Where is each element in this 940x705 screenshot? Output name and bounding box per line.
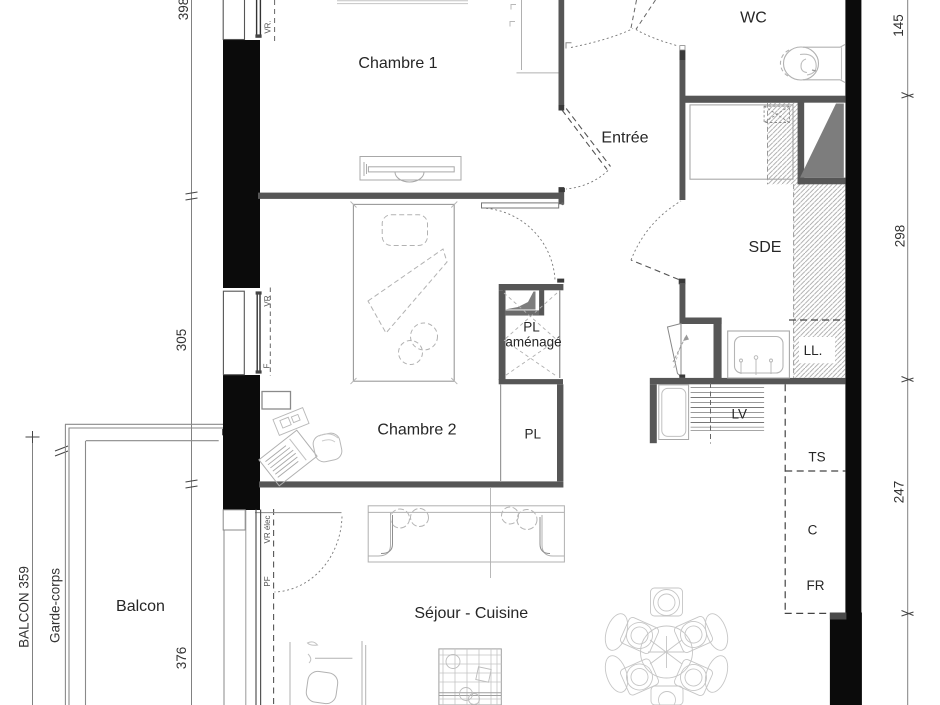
svg-text:Entrée: Entrée xyxy=(601,130,648,147)
svg-text:PL: PL xyxy=(525,427,542,442)
svg-text:298: 298 xyxy=(893,225,908,248)
svg-text:145: 145 xyxy=(891,14,906,37)
svg-text:LV: LV xyxy=(732,407,748,422)
svg-text:VR: VR xyxy=(263,295,272,306)
svg-text:PF: PF xyxy=(263,576,272,586)
svg-text:LL.: LL. xyxy=(804,343,823,358)
svg-text:Balcon: Balcon xyxy=(116,598,165,615)
svg-text:SDE: SDE xyxy=(749,239,782,256)
svg-text:BALCON 359: BALCON 359 xyxy=(17,566,32,648)
svg-text:C: C xyxy=(808,523,818,538)
svg-text:247: 247 xyxy=(892,481,907,504)
svg-text:VR élec: VR élec xyxy=(263,515,272,543)
svg-text:PL: PL xyxy=(523,320,540,335)
svg-text:aménagé: aménagé xyxy=(505,335,561,350)
svg-text:F: F xyxy=(262,363,271,368)
svg-text:TS: TS xyxy=(808,450,825,465)
svg-text:VR.: VR. xyxy=(264,20,273,33)
svg-text:376: 376 xyxy=(174,647,189,670)
svg-text:Séjour - Cuisine: Séjour - Cuisine xyxy=(414,605,528,622)
svg-text:305: 305 xyxy=(174,329,189,352)
svg-text:Chambre 2: Chambre 2 xyxy=(377,422,456,439)
svg-text:Chambre 1: Chambre 1 xyxy=(358,55,437,72)
svg-text:WC: WC xyxy=(740,10,767,27)
svg-text:FR: FR xyxy=(807,578,825,593)
svg-text:398: 398 xyxy=(176,0,191,20)
svg-text:Garde-corps: Garde-corps xyxy=(48,568,63,643)
